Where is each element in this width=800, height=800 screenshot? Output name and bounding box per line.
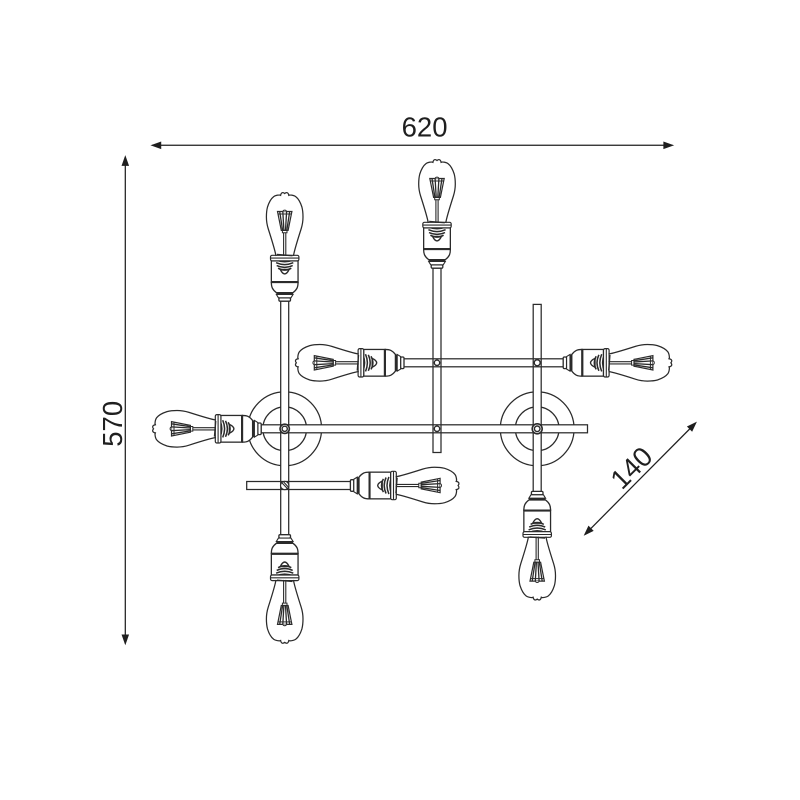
svg-text:570: 570 bbox=[97, 401, 128, 447]
svg-text:620: 620 bbox=[402, 112, 448, 143]
